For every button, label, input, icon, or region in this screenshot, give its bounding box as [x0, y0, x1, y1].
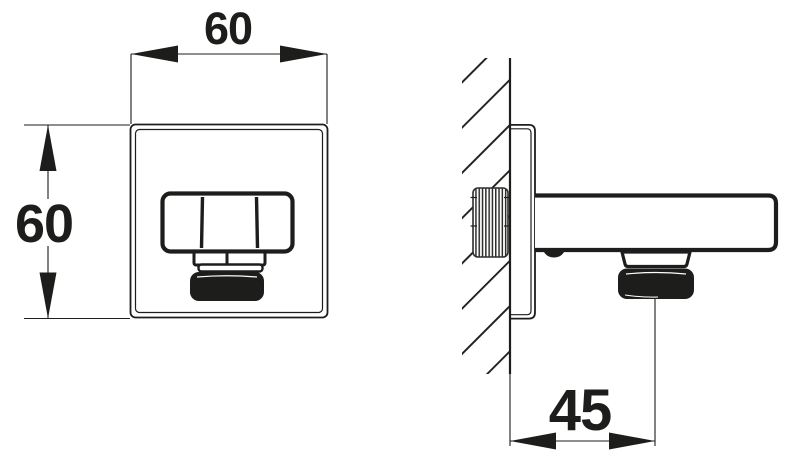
technical-drawing-sheet: 60 60 — [0, 0, 800, 462]
dimension-label-front-width: 60 — [204, 3, 252, 54]
drawing-svg: 60 60 — [0, 0, 800, 462]
dimension-label-side-offset: 45 — [549, 378, 612, 443]
threaded-inlet-pipe — [471, 188, 511, 257]
hex-nut-front — [194, 252, 265, 265]
front-view: 60 60 — [15, 3, 328, 319]
arrowhead-up-icon — [40, 125, 57, 171]
arm-block-front — [163, 194, 293, 252]
dimension-side-offset: 45 — [510, 299, 655, 450]
arrowhead-right-icon — [280, 46, 327, 63]
arm-side-fill — [535, 198, 774, 249]
washer-front — [199, 265, 263, 272]
side-view: 45 — [462, 58, 776, 450]
arrowhead-down-icon — [40, 273, 57, 319]
arrowhead-right-icon — [609, 433, 655, 450]
hex-nut-side — [622, 252, 690, 267]
arrowhead-left-icon — [131, 46, 178, 63]
dimension-label-front-height: 60 — [15, 194, 73, 254]
dimension-front-width: 60 — [131, 3, 327, 124]
dimension-front-height: 60 — [15, 125, 130, 319]
arm-block-facet-line-left — [202, 197, 203, 248]
arm-underside-bump — [543, 250, 565, 258]
arm-block-facet-line-right — [257, 197, 258, 248]
